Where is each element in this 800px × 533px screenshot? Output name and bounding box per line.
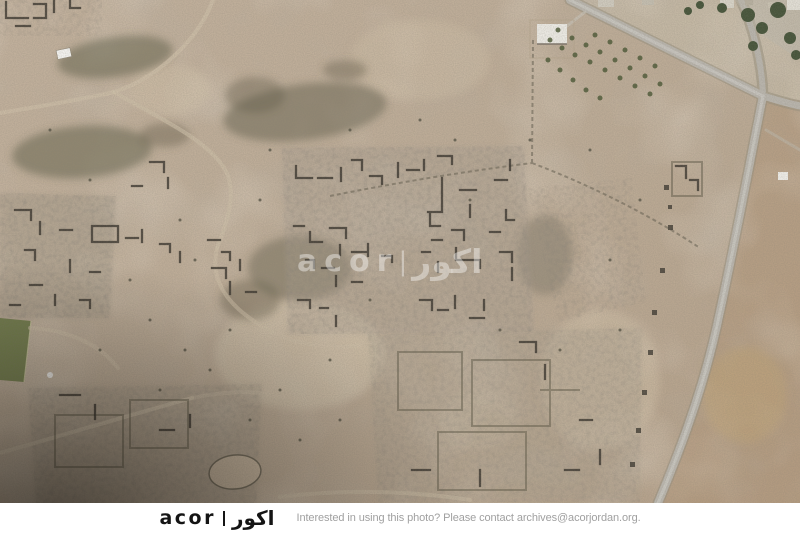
- aerial-photo-scene: [0, 0, 800, 503]
- vignette: [0, 0, 800, 503]
- acor-logo: acor اكور: [159, 508, 274, 528]
- contact-message: Interested in using this photo? Please c…: [297, 512, 641, 524]
- logo-arabic: اكور: [232, 508, 275, 528]
- logo-separator-bar: [223, 511, 225, 526]
- screenshot-frame: acor | اكور acor اكور Interested in usin…: [0, 0, 800, 533]
- aerial-photo: acor | اكور: [0, 0, 800, 503]
- footer-bar: acor اكور Interested in using this photo…: [0, 503, 800, 533]
- logo-latin: acor: [159, 509, 216, 528]
